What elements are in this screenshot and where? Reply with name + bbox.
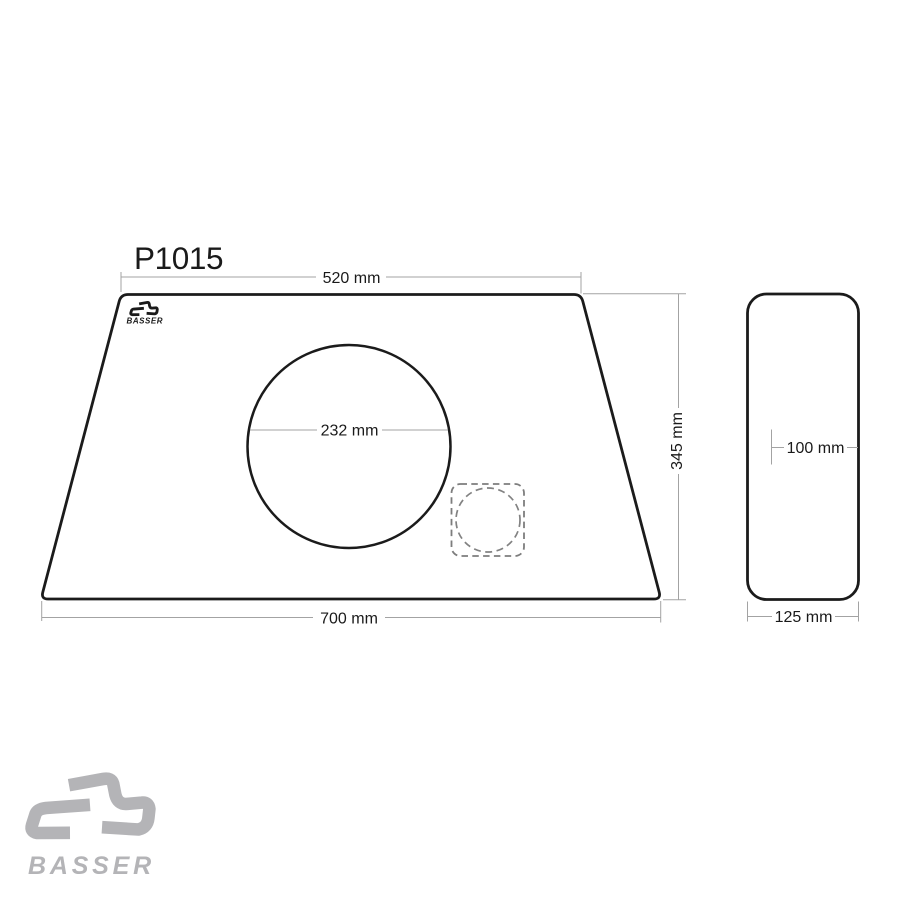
svg-text:125 mm: 125 mm — [775, 609, 833, 626]
svg-text:232 mm: 232 mm — [321, 423, 379, 440]
svg-text:P1015: P1015 — [134, 240, 223, 276]
svg-text:BASSER: BASSER — [28, 852, 155, 880]
svg-text:345 mm: 345 mm — [669, 412, 686, 470]
svg-text:700 mm: 700 mm — [320, 611, 378, 628]
svg-text:520 mm: 520 mm — [323, 270, 381, 287]
svg-text:100 mm: 100 mm — [787, 440, 845, 457]
svg-text:BASSER: BASSER — [127, 316, 164, 325]
